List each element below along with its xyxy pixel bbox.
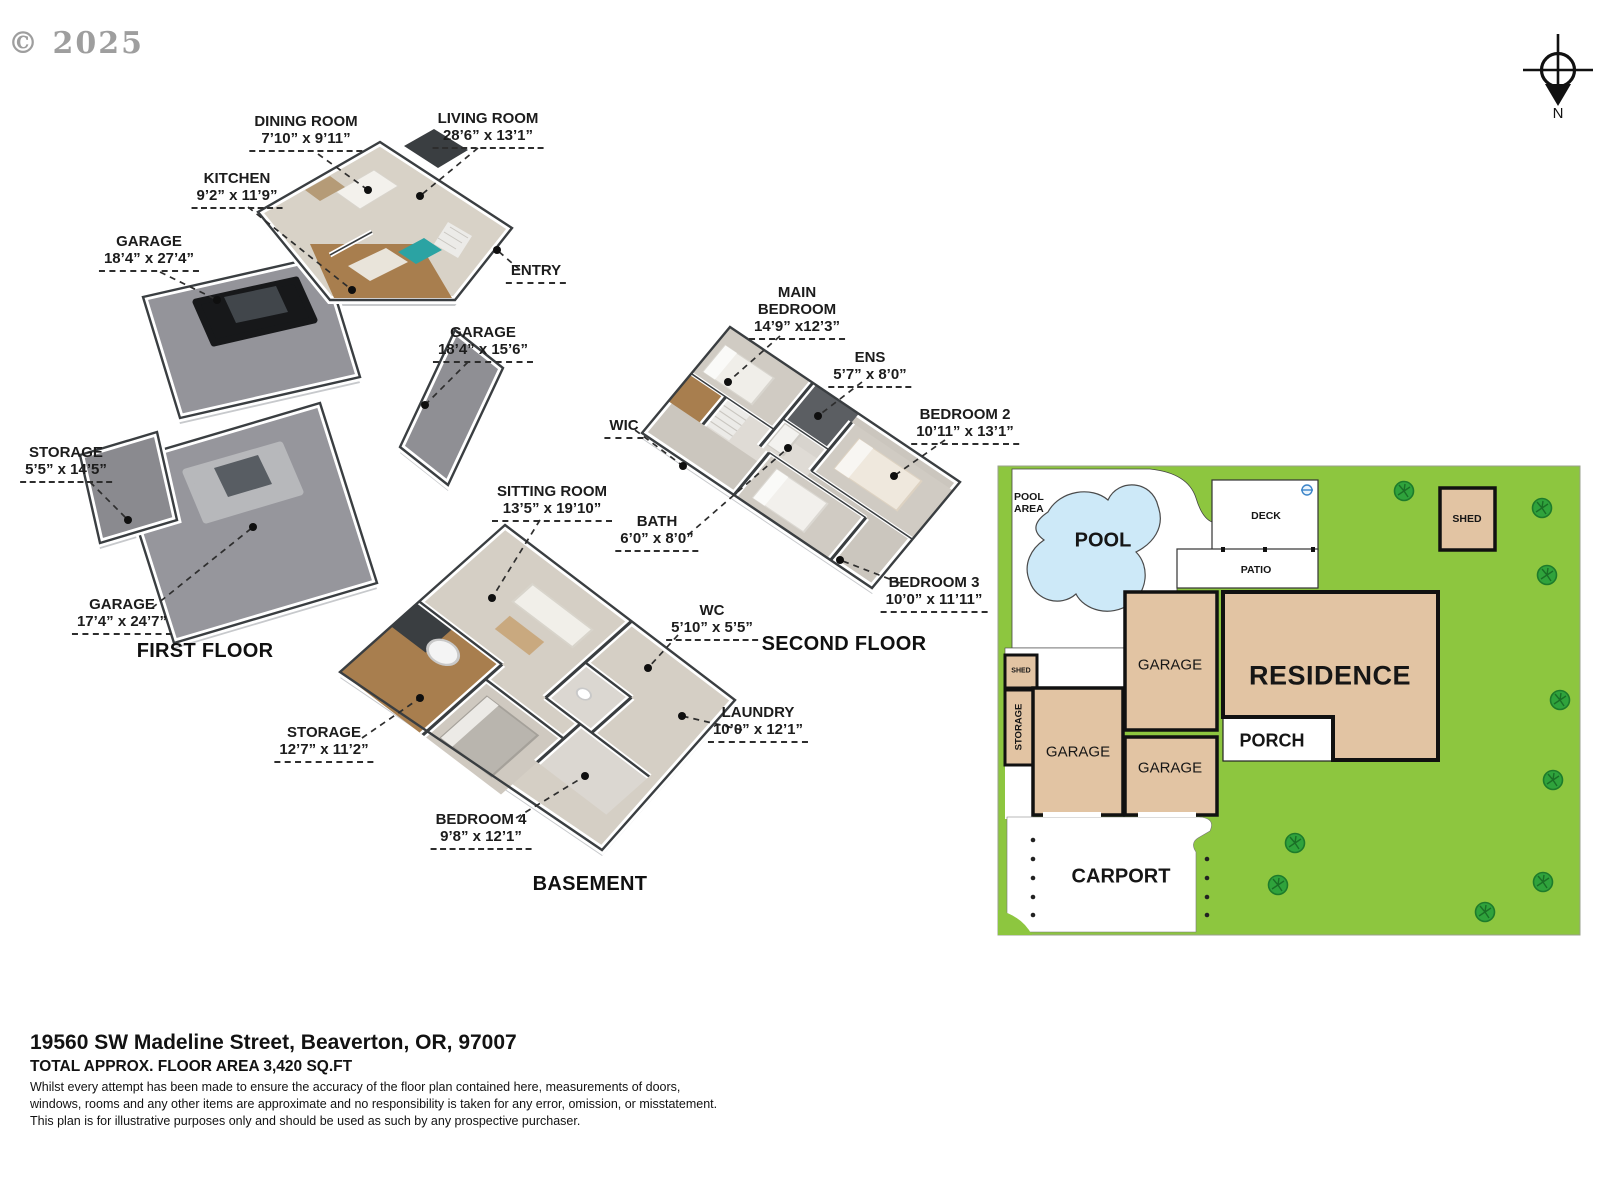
label-pool-area: POOL AREA	[1014, 491, 1044, 515]
label-ens: ENS 5’7” x 8’0”	[828, 349, 911, 388]
label-kitchen: KITCHEN 9’2” x 11’9”	[192, 170, 283, 209]
label-laundry: LAUNDRY 10’0” x 12’1”	[708, 704, 808, 743]
label-entry: ENTRY	[506, 262, 566, 284]
deck-table-icon	[1301, 485, 1313, 495]
label-bedroom-4: BEDROOM 4 9’8” x 12’1”	[431, 811, 532, 850]
label-garage-site-left: GARAGE	[1046, 744, 1110, 761]
label-garage-large: GARAGE 18’4” x 27’4”	[99, 233, 199, 272]
label-shed-right: SHED	[1452, 513, 1481, 525]
label-shed-small: SHED	[1011, 668, 1030, 675]
label-carport: CARPORT	[1072, 866, 1171, 889]
floor-area-line: TOTAL APPROX. FLOOR AREA 3,420 SQ.FT	[30, 1058, 352, 1076]
second-floor-plan	[642, 327, 960, 594]
label-patio: PATIO	[1241, 564, 1272, 576]
compass-north-label: N	[1553, 105, 1564, 122]
first-floor-plan	[80, 129, 512, 649]
label-living-room: LIVING ROOM 28’6” x 13’1”	[433, 110, 544, 149]
label-wc: WC 5’10” x 5’5”	[666, 602, 758, 641]
disclaimer-line-1: Whilst every attempt has been made to en…	[30, 1080, 680, 1094]
label-storage-basement: STORAGE 12’7” x 11’2”	[274, 724, 373, 763]
caption-second-floor: SECOND FLOOR	[762, 633, 927, 656]
basement-plan	[340, 525, 735, 856]
caption-basement: BASEMENT	[533, 873, 648, 896]
label-bath: BATH 6’0” x 8’0”	[615, 513, 698, 552]
disclaimer-line-2: windows, rooms and any other items are a…	[30, 1097, 717, 1111]
label-residence: RESIDENCE	[1249, 661, 1411, 692]
address-line: 19560 SW Madeline Street, Beaverton, OR,…	[30, 1031, 517, 1055]
label-sitting-room: SITTING ROOM 13’5” x 19’10”	[492, 483, 612, 522]
copyright-watermark: © 2025	[8, 26, 144, 61]
label-wic: WIC	[604, 417, 643, 439]
label-porch: PORCH	[1239, 731, 1304, 752]
label-bedroom-2: BEDROOM 2 10’11” x 13’1”	[911, 406, 1019, 445]
label-bedroom-3: BEDROOM 3 10’0” x 11’11”	[881, 574, 988, 613]
label-garage-site-bottom: GARAGE	[1138, 760, 1202, 777]
label-dining-room: DINING ROOM 7’10” x 9’11”	[249, 113, 362, 152]
disclaimer-line-3: This plan is for illustrative purposes o…	[30, 1114, 580, 1128]
label-deck: DECK	[1251, 510, 1281, 522]
label-pool: POOL	[1075, 530, 1132, 553]
label-garage-lower: GARAGE 17’4” x 24’7”	[72, 596, 172, 635]
label-main-bedroom: MAIN BEDROOM 14’9” x12’3”	[749, 284, 845, 340]
north-arrow	[1545, 84, 1571, 106]
floorplan-sheet: { "copyright": "© 2025", "compass": { "n…	[0, 0, 1600, 1200]
label-garage-site-top: GARAGE	[1138, 657, 1202, 674]
caption-first-floor: FIRST FLOOR	[137, 640, 274, 663]
label-garage-right: GARAGE 18’4” x 15’6”	[433, 324, 533, 363]
compass-icon	[1523, 34, 1593, 106]
label-storage-site: STORAGE	[1014, 704, 1025, 751]
label-storage-first: STORAGE 5’5” x 14’5”	[20, 444, 112, 483]
